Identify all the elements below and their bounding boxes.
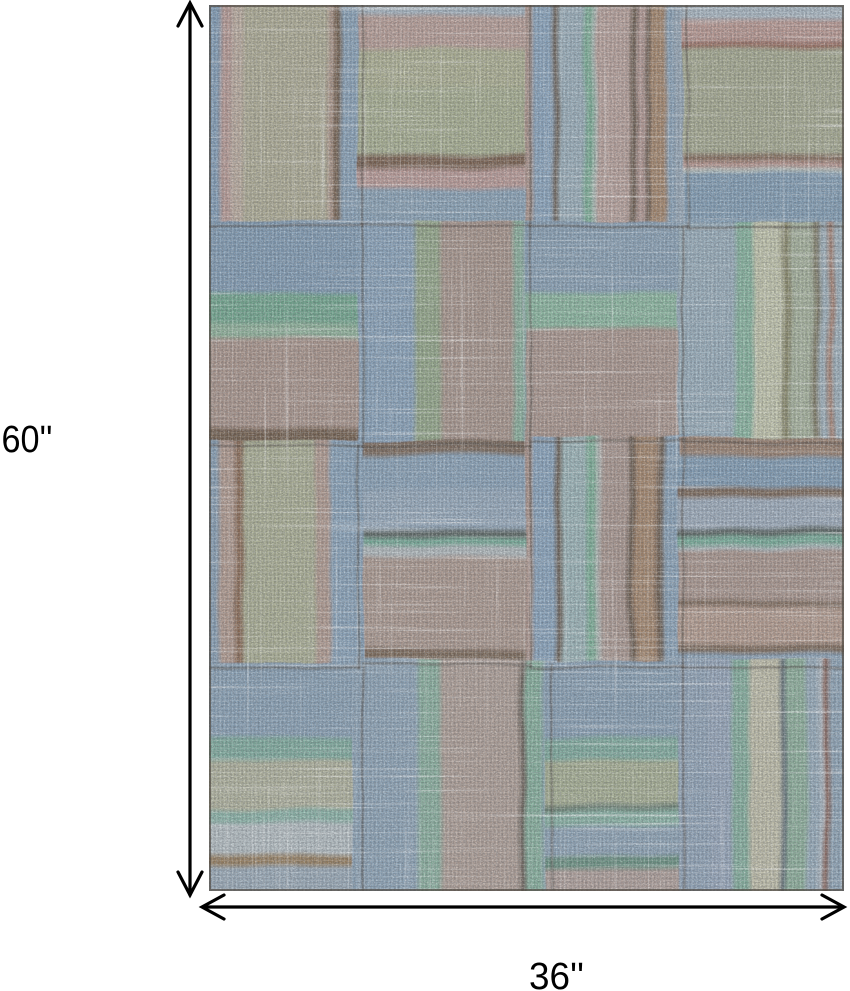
svg-text:60'': 60'' [2, 417, 53, 460]
svg-text:36'': 36'' [529, 954, 584, 991]
